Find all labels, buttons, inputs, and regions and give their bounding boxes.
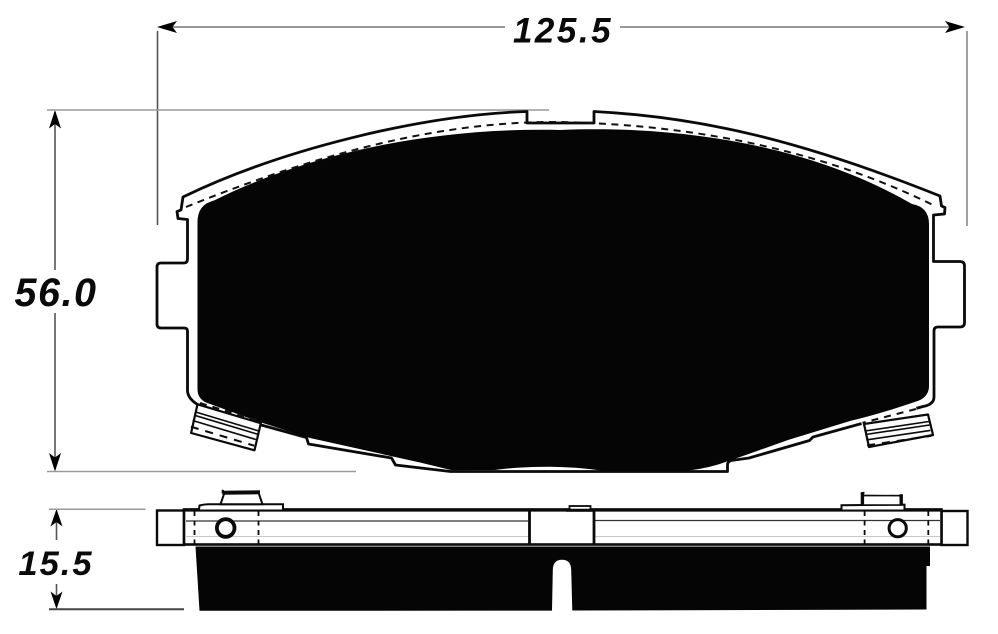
svg-text:15.5: 15.5: [18, 545, 93, 583]
svg-text:125.5: 125.5: [513, 12, 613, 51]
svg-text:56.0: 56.0: [15, 271, 98, 315]
